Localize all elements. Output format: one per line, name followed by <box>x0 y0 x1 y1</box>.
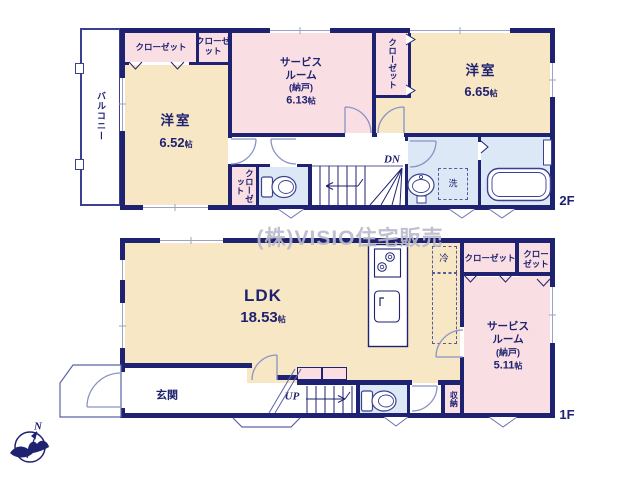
corridor-1f <box>247 385 356 413</box>
window <box>120 303 125 348</box>
balcony-rail-tick <box>75 63 84 74</box>
toilet-1f <box>360 385 407 413</box>
size-value: 18.53 <box>240 309 278 326</box>
size-unit: 帖 <box>490 89 498 98</box>
storage-label: 収納 <box>449 388 458 410</box>
wall <box>232 164 270 167</box>
wall <box>277 375 297 380</box>
floor-plan: バルコニー クローゼット クローゼット 洋室 6.52帖 サービス ルーム (納… <box>0 0 640 480</box>
service-room-line: (納戸) <box>289 83 313 94</box>
room-2f-east-ext <box>376 98 411 133</box>
size-unit: 帖 <box>514 361 522 370</box>
closet-opening <box>129 62 189 65</box>
stairs-dn-label: DN <box>384 153 400 166</box>
wall <box>228 164 232 210</box>
wall <box>256 167 259 210</box>
room-size: 6.13帖 <box>286 94 315 107</box>
fridge-space-lower <box>432 273 457 344</box>
window <box>550 63 555 97</box>
floor2-label: 2F <box>559 193 574 209</box>
closet-label: クローゼット <box>196 37 230 57</box>
wall <box>405 164 408 210</box>
shoe-cabinet <box>322 367 347 380</box>
shoe-cabinet <box>297 367 322 380</box>
wall <box>372 133 377 137</box>
wall <box>441 384 445 418</box>
balcony-label: バルコニー <box>95 79 105 153</box>
wall <box>297 380 412 385</box>
wall <box>356 385 360 418</box>
balcony-rail-tick <box>75 159 84 170</box>
wall <box>405 137 408 141</box>
window <box>550 287 555 343</box>
service-room-line: サービス <box>280 57 322 70</box>
wall <box>460 357 464 413</box>
bathroom-2f <box>481 137 550 205</box>
window <box>120 260 125 280</box>
wall <box>232 133 345 137</box>
closet-label: クローゼット <box>135 42 186 52</box>
wall <box>460 243 464 327</box>
stairs-2f-area <box>312 164 405 205</box>
room-size: 6.65帖 <box>464 84 497 100</box>
closet-label: クローゼット <box>387 34 396 92</box>
closet-label: クローゼット <box>235 168 254 204</box>
service-room-line: ルーム <box>285 70 316 83</box>
fridge-label: 冷 <box>439 253 449 264</box>
service-room-line: サービス <box>487 321 529 334</box>
wall <box>308 164 312 210</box>
wall <box>376 95 408 98</box>
size-value: 6.13 <box>286 94 307 106</box>
closet-label: クローゼット <box>464 253 515 263</box>
wall <box>478 160 481 210</box>
window <box>160 238 223 243</box>
wall <box>408 33 411 98</box>
toilet-2f <box>259 167 308 205</box>
entrance-door-opening <box>119 372 126 408</box>
size-value: 6.65 <box>464 84 489 99</box>
wall <box>478 137 481 142</box>
size-unit: 帖 <box>308 96 316 105</box>
size-unit: 帖 <box>278 315 286 324</box>
wall <box>407 385 410 413</box>
hall-cell-1f <box>410 385 441 413</box>
window <box>270 28 330 33</box>
ldk-size: 18.53帖 <box>240 309 286 327</box>
wall <box>464 272 550 276</box>
size-unit: 帖 <box>185 140 193 149</box>
size-value: 6.52 <box>159 135 184 150</box>
room-name: 洋室 <box>161 113 192 129</box>
compass-icon <box>10 431 49 462</box>
stairs-up-label: UP <box>285 390 300 403</box>
ldk-name: LDK <box>244 286 282 306</box>
service-room-line: (納戸) <box>496 348 520 359</box>
room-name: 洋室 <box>466 63 497 79</box>
hall-2f <box>232 137 408 165</box>
wall <box>515 243 519 276</box>
size-value: 5.11 <box>494 359 515 371</box>
entrance-genkan <box>125 368 247 413</box>
wall <box>120 413 555 418</box>
window <box>410 28 510 33</box>
wall <box>372 33 376 133</box>
window <box>120 78 125 131</box>
entrance-label: 玄関 <box>156 389 178 402</box>
floor1-label: 1F <box>559 407 574 423</box>
laundry-label: 洗 <box>448 179 457 190</box>
watermark: (株)VISIO住宅販売 <box>256 222 443 252</box>
room-ldk <box>125 243 460 383</box>
window <box>143 205 208 210</box>
room-2f-east <box>411 33 550 133</box>
wall <box>550 28 555 210</box>
compass-north-label: N <box>34 420 42 433</box>
service-room-line: ルーム <box>492 334 523 347</box>
room-size: 6.52帖 <box>159 135 192 151</box>
closet-label: クローゼット <box>520 250 552 270</box>
wall <box>125 363 252 368</box>
room-size: 5.11帖 <box>494 359 523 372</box>
